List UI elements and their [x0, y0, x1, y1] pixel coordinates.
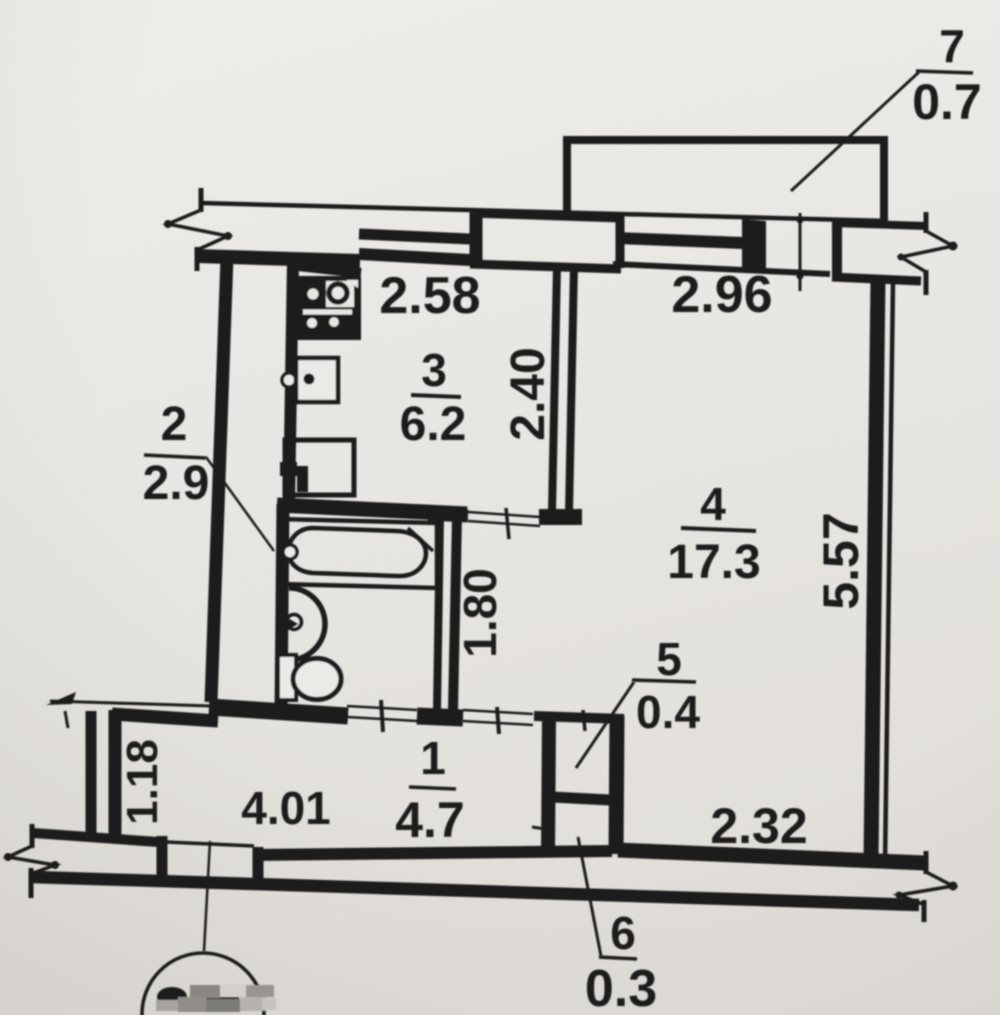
- svg-text:2.40: 2.40: [502, 347, 555, 440]
- svg-text:4.7: 4.7: [395, 792, 465, 848]
- svg-text:0.3: 0.3: [585, 960, 657, 1015]
- svg-text:0.4: 0.4: [636, 686, 700, 738]
- svg-text:6.2: 6.2: [400, 398, 467, 451]
- svg-text:1.80: 1.80: [454, 568, 506, 658]
- svg-text:0.7: 0.7: [912, 74, 982, 130]
- svg-text:4: 4: [700, 478, 726, 530]
- svg-text:17.3: 17.3: [667, 536, 760, 589]
- svg-text:2.96: 2.96: [671, 266, 772, 324]
- svg-text:3: 3: [421, 344, 447, 396]
- svg-text:5: 5: [656, 633, 682, 685]
- svg-text:7: 7: [939, 20, 965, 72]
- svg-text:4.01: 4.01: [241, 782, 331, 834]
- svg-text:2.58: 2.58: [379, 267, 480, 325]
- svg-text:2.9: 2.9: [143, 457, 210, 510]
- svg-text:2: 2: [161, 398, 188, 451]
- svg-text:1: 1: [420, 732, 446, 784]
- svg-text:5.57: 5.57: [813, 512, 869, 609]
- svg-text:6: 6: [610, 907, 636, 959]
- svg-text:1.18: 1.18: [118, 739, 167, 825]
- svg-text:2.32: 2.32: [710, 798, 807, 854]
